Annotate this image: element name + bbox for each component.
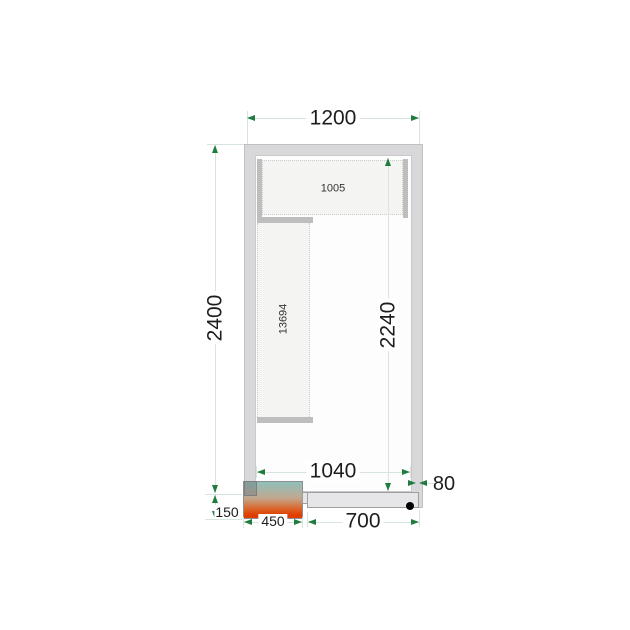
dim-arrow-left-icon — [244, 519, 252, 525]
dim-unit-width-label: 450 — [258, 514, 287, 528]
door — [307, 492, 419, 508]
dim-outer-width-label: 1200 — [307, 108, 360, 129]
dim-unit-offset-label: 150 — [214, 505, 239, 519]
cold-room-plan-drawing: 1005 13694 1200 2400 2240 — [0, 0, 630, 630]
dim-arrow-right-icon — [294, 519, 302, 525]
dim-arrow-right-icon — [402, 469, 410, 475]
shelf-top-right-bar — [403, 159, 408, 218]
dim-arrow-up-icon — [212, 495, 218, 503]
dim-inner-width-label: 1040 — [307, 461, 360, 482]
dim-arrow-right-icon — [411, 115, 419, 121]
shelf-top-left-bar — [257, 159, 262, 218]
dim-arrow-down-icon — [385, 483, 391, 491]
shelf-left-label: 13694 — [279, 301, 290, 338]
dim-arrow-left-icon — [308, 519, 316, 525]
shelf-top-label: 1005 — [318, 184, 348, 195]
dim-arrow-down-icon — [212, 485, 218, 493]
extension-line — [410, 466, 411, 478]
dim-arrow-up-icon — [212, 145, 218, 153]
extension-line — [419, 510, 420, 527]
extension-line — [302, 517, 303, 528]
dim-arrow-left-icon — [419, 480, 427, 486]
dim-wall-thickness-label: 80 — [430, 474, 458, 494]
extension-line — [419, 111, 420, 144]
door-hinge-dot — [406, 502, 414, 510]
dim-outer-height-label: 2400 — [205, 292, 226, 345]
shelf-left-bottom-bar — [257, 417, 313, 423]
dim-door-width-label: 700 — [342, 511, 383, 532]
dim-arrow-left-icon — [247, 115, 255, 121]
dim-arrow-left-icon — [257, 469, 265, 475]
dim-arrow-up-icon — [385, 158, 391, 166]
dim-arrow-right-icon — [411, 519, 419, 525]
wall-unit-overlap — [244, 481, 257, 496]
dim-inner-height-label: 2240 — [378, 299, 399, 352]
dim-arrow-right-icon — [408, 480, 416, 486]
extension-line — [205, 494, 242, 495]
